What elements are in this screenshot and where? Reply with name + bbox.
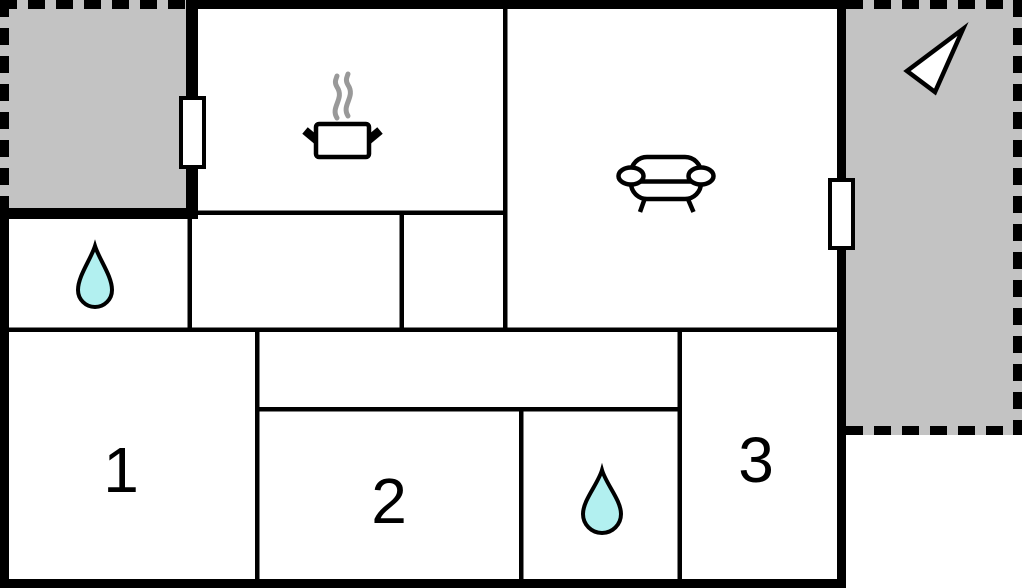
wall-bedroom1-right: [255, 332, 260, 579]
wall-middle-horizontal: [0, 328, 846, 333]
door-left-terrace: [181, 98, 204, 167]
room-kitchen: [198, 9, 503, 211]
wall-terrace-bottom-side: [0, 208, 198, 219]
doors: [181, 98, 853, 248]
steam-line-left: [335, 76, 339, 118]
door-right-terrace: [830, 180, 853, 248]
floor-plan-drawing: 1 2 3: [0, 0, 1024, 588]
wall-utility-right: [400, 215, 405, 330]
terrace-top-left: [0, 0, 192, 216]
room-hallway: [260, 332, 678, 407]
water-drop-icon-upper: [78, 246, 112, 307]
wall-kitchen-living-divider: [503, 9, 508, 330]
sofa-armrest-right: [689, 168, 714, 185]
sofa-icon: [619, 157, 714, 212]
room-utility: [192, 215, 400, 328]
wall-kitchen-bottom: [190, 211, 508, 216]
wall-outer-left: [0, 208, 9, 588]
wall-bedroom2-right: [519, 412, 524, 580]
wall-hallway-bottom: [255, 407, 682, 412]
sofa-armrest-left: [619, 168, 644, 185]
wall-outer-top: [186, 0, 846, 9]
floor-plan: 1 2 3: [0, 0, 1024, 588]
cooking-pot-icon: [305, 74, 380, 157]
pot-body: [316, 124, 369, 157]
wall-outer-right: [837, 0, 846, 588]
steam-line-right: [346, 74, 350, 116]
wall-bath-right: [188, 215, 193, 330]
water-drop-icon-lower: [583, 470, 621, 533]
wall-outer-bottom: [0, 579, 846, 588]
bedroom-3-label: 3: [738, 424, 774, 496]
room-corridor-small: [404, 215, 503, 328]
bedroom-2-label: 2: [371, 465, 407, 537]
wall-bedroom3-left: [678, 332, 683, 579]
bedroom-1-label: 1: [103, 434, 139, 506]
